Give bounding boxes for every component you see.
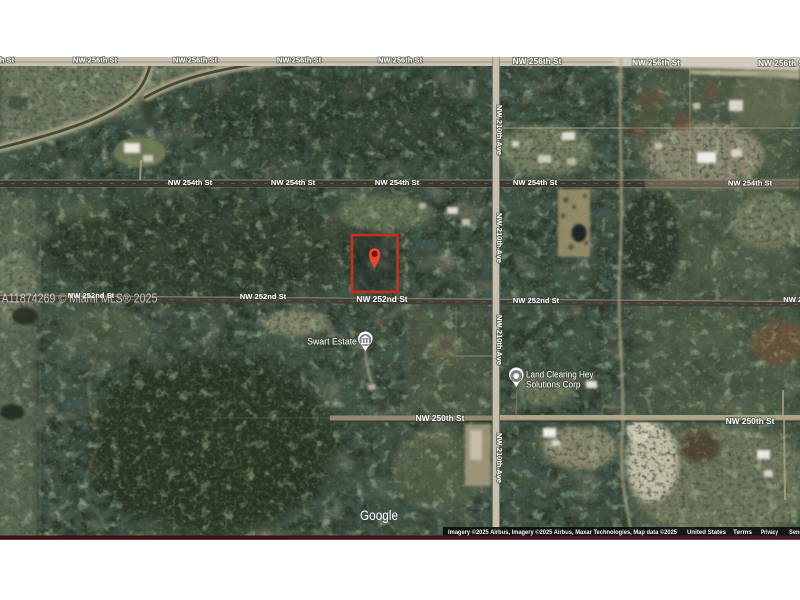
svg-text:NW 254th St: NW 254th St bbox=[513, 178, 558, 187]
svg-text:Send: Send bbox=[789, 529, 800, 536]
svg-text:NW 254th St: NW 254th St bbox=[168, 178, 213, 187]
svg-text:NW 256th St: NW 256th St bbox=[173, 56, 218, 65]
svg-text:United States: United States bbox=[687, 529, 726, 536]
svg-text:Google: Google bbox=[360, 507, 398, 523]
svg-text:Solutions Corp: Solutions Corp bbox=[526, 380, 581, 390]
svg-text:NW 254th St: NW 254th St bbox=[728, 179, 773, 188]
svg-text:NW 252nd St: NW 252nd St bbox=[356, 294, 407, 304]
svg-text:NW 210th Ave: NW 210th Ave bbox=[495, 433, 504, 483]
svg-text:A11874269 © Miami MLS® 2025: A11874269 © Miami MLS® 2025 bbox=[2, 292, 158, 306]
svg-text:NW 256th St: NW 256th St bbox=[513, 56, 562, 66]
svg-text:NW 254th St: NW 254th St bbox=[271, 178, 316, 187]
svg-text:Land Clearing Hey: Land Clearing Hey bbox=[526, 370, 594, 380]
svg-text:Privacy: Privacy bbox=[761, 529, 778, 536]
svg-text:Imagery ©2025 Airbus, Imagery: Imagery ©2025 Airbus, Imagery ©2025 Airb… bbox=[448, 528, 677, 536]
svg-text:NW 256th St: NW 256th St bbox=[73, 56, 118, 65]
svg-text:NW 256th St: NW 256th St bbox=[0, 56, 15, 65]
svg-text:NW 252: NW 252 bbox=[783, 295, 800, 304]
svg-text:Swart Estate: Swart Estate bbox=[307, 337, 357, 347]
svg-text:NW 250th St: NW 250th St bbox=[416, 413, 465, 423]
svg-text:NW 252nd St: NW 252nd St bbox=[513, 296, 560, 305]
svg-text:NW 210th Ave: NW 210th Ave bbox=[495, 315, 504, 365]
svg-text:NW 250th St: NW 250th St bbox=[726, 416, 775, 426]
svg-text:NW 210th Ave: NW 210th Ave bbox=[495, 213, 504, 263]
svg-text:NW 210th Ave: NW 210th Ave bbox=[495, 105, 504, 155]
svg-text:NW 256th St: NW 256th St bbox=[277, 56, 322, 65]
svg-text:Terms: Terms bbox=[733, 529, 752, 536]
svg-text:NW 256th St: NW 256th St bbox=[632, 59, 680, 68]
svg-text:NW 254th St: NW 254th St bbox=[375, 178, 420, 187]
svg-text:NW 256th S: NW 256th S bbox=[758, 58, 800, 68]
svg-text:NW 252nd St: NW 252nd St bbox=[240, 292, 287, 301]
svg-text:NW 256th St: NW 256th St bbox=[378, 56, 423, 65]
